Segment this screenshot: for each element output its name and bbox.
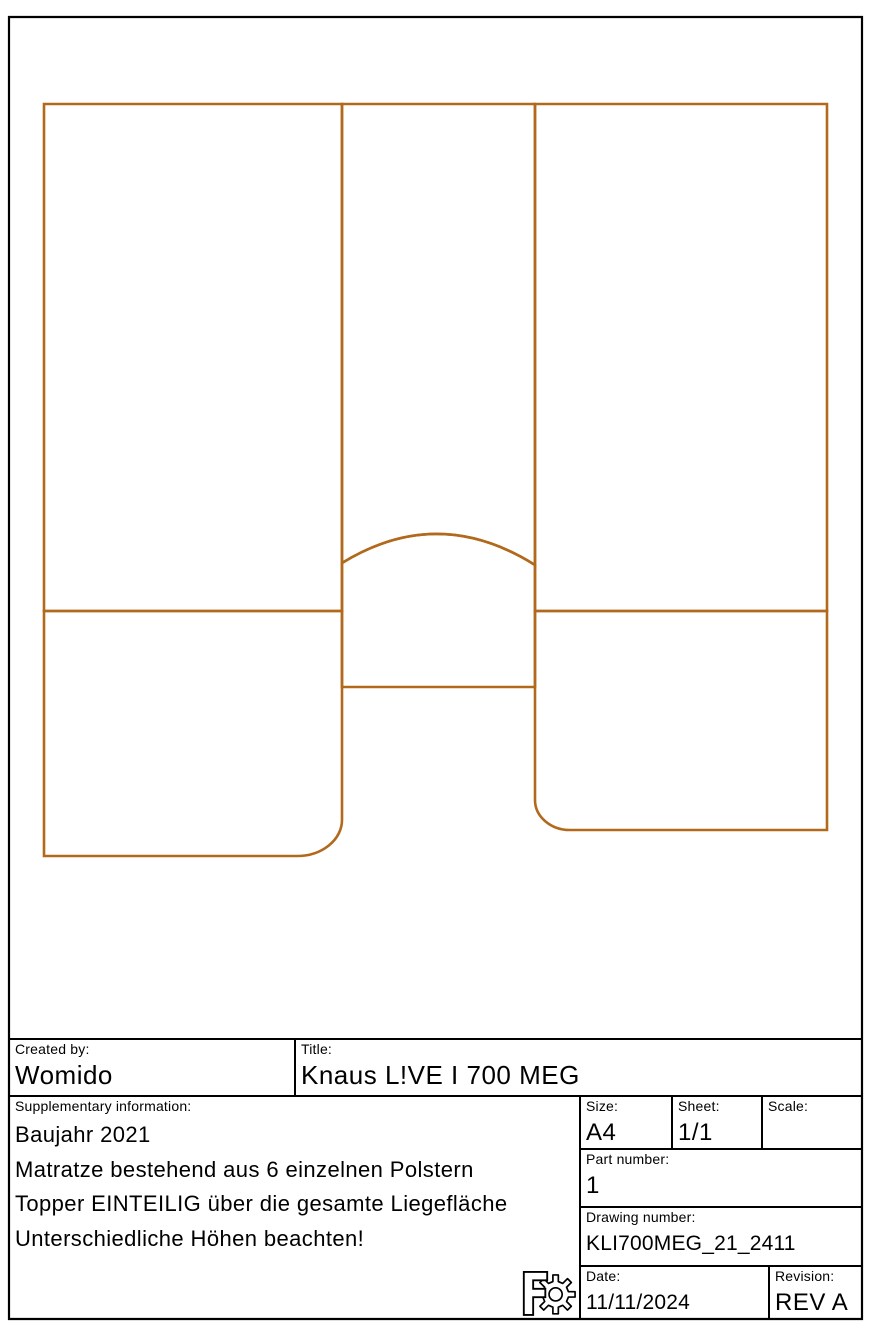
drawing-sheet: Created by: Womido Title: Knaus L!VE I 7… <box>0 0 871 1336</box>
cushion-bottom-right <box>535 611 827 830</box>
drawing-number-value: KLI700MEG_21_2411 <box>586 1231 858 1257</box>
cushion-top-left <box>44 104 342 611</box>
revision-cell: Revision: REV A <box>769 1266 862 1319</box>
title-label: Title: <box>301 1042 858 1057</box>
scale-cell: Scale: <box>762 1096 862 1149</box>
mattress-outline <box>44 104 827 856</box>
supplementary-cell: Supplementary information: Baujahr 2021 … <box>9 1096 580 1319</box>
supplementary-line: Topper EINTEILIG über die gesamte Liegef… <box>15 1187 576 1222</box>
date-cell: Date: 11/11/2024 <box>580 1266 769 1319</box>
cushion-bottom-left <box>44 611 342 856</box>
created-by-cell: Created by: Womido <box>9 1039 295 1096</box>
supplementary-line: Matratze bestehend aus 6 einzelnen Polst… <box>15 1153 576 1188</box>
size-label: Size: <box>586 1099 668 1114</box>
sheet-cell: Sheet: 1/1 <box>672 1096 762 1149</box>
part-number-label: Part number: <box>586 1152 858 1167</box>
cushion-top-right <box>535 104 827 611</box>
date-value: 11/11/2024 <box>586 1290 765 1316</box>
revision-label: Revision: <box>775 1269 858 1284</box>
title-value: Knaus L!VE I 700 MEG <box>301 1060 858 1090</box>
part-number-value: 1 <box>586 1172 858 1200</box>
supplementary-line: Baujahr 2021 <box>15 1118 576 1153</box>
title-cell: Title: Knaus L!VE I 700 MEG <box>295 1039 862 1096</box>
part-number-cell: Part number: 1 <box>580 1149 862 1207</box>
supplementary-text: Baujahr 2021 Matratze bestehend aus 6 ei… <box>15 1118 576 1256</box>
size-cell: Size: A4 <box>580 1096 672 1149</box>
scale-label: Scale: <box>768 1099 858 1114</box>
sheet-label: Sheet: <box>678 1099 758 1114</box>
sheet-value: 1/1 <box>678 1119 758 1147</box>
size-value: A4 <box>586 1119 668 1147</box>
drawing-number-label: Drawing number: <box>586 1210 858 1225</box>
created-by-value: Womido <box>15 1060 291 1090</box>
created-by-label: Created by: <box>15 1042 291 1057</box>
revision-value: REV A <box>775 1289 858 1317</box>
date-label: Date: <box>586 1269 765 1284</box>
cushion-middle <box>342 534 535 687</box>
freecad-logo-icon <box>521 1267 579 1318</box>
drawing-number-cell: Drawing number: KLI700MEG_21_2411 <box>580 1207 862 1266</box>
cushion-top-middle <box>342 104 535 565</box>
supplementary-line: Unterschiedliche Höhen beachten! <box>15 1222 576 1257</box>
supplementary-label: Supplementary information: <box>15 1099 576 1114</box>
